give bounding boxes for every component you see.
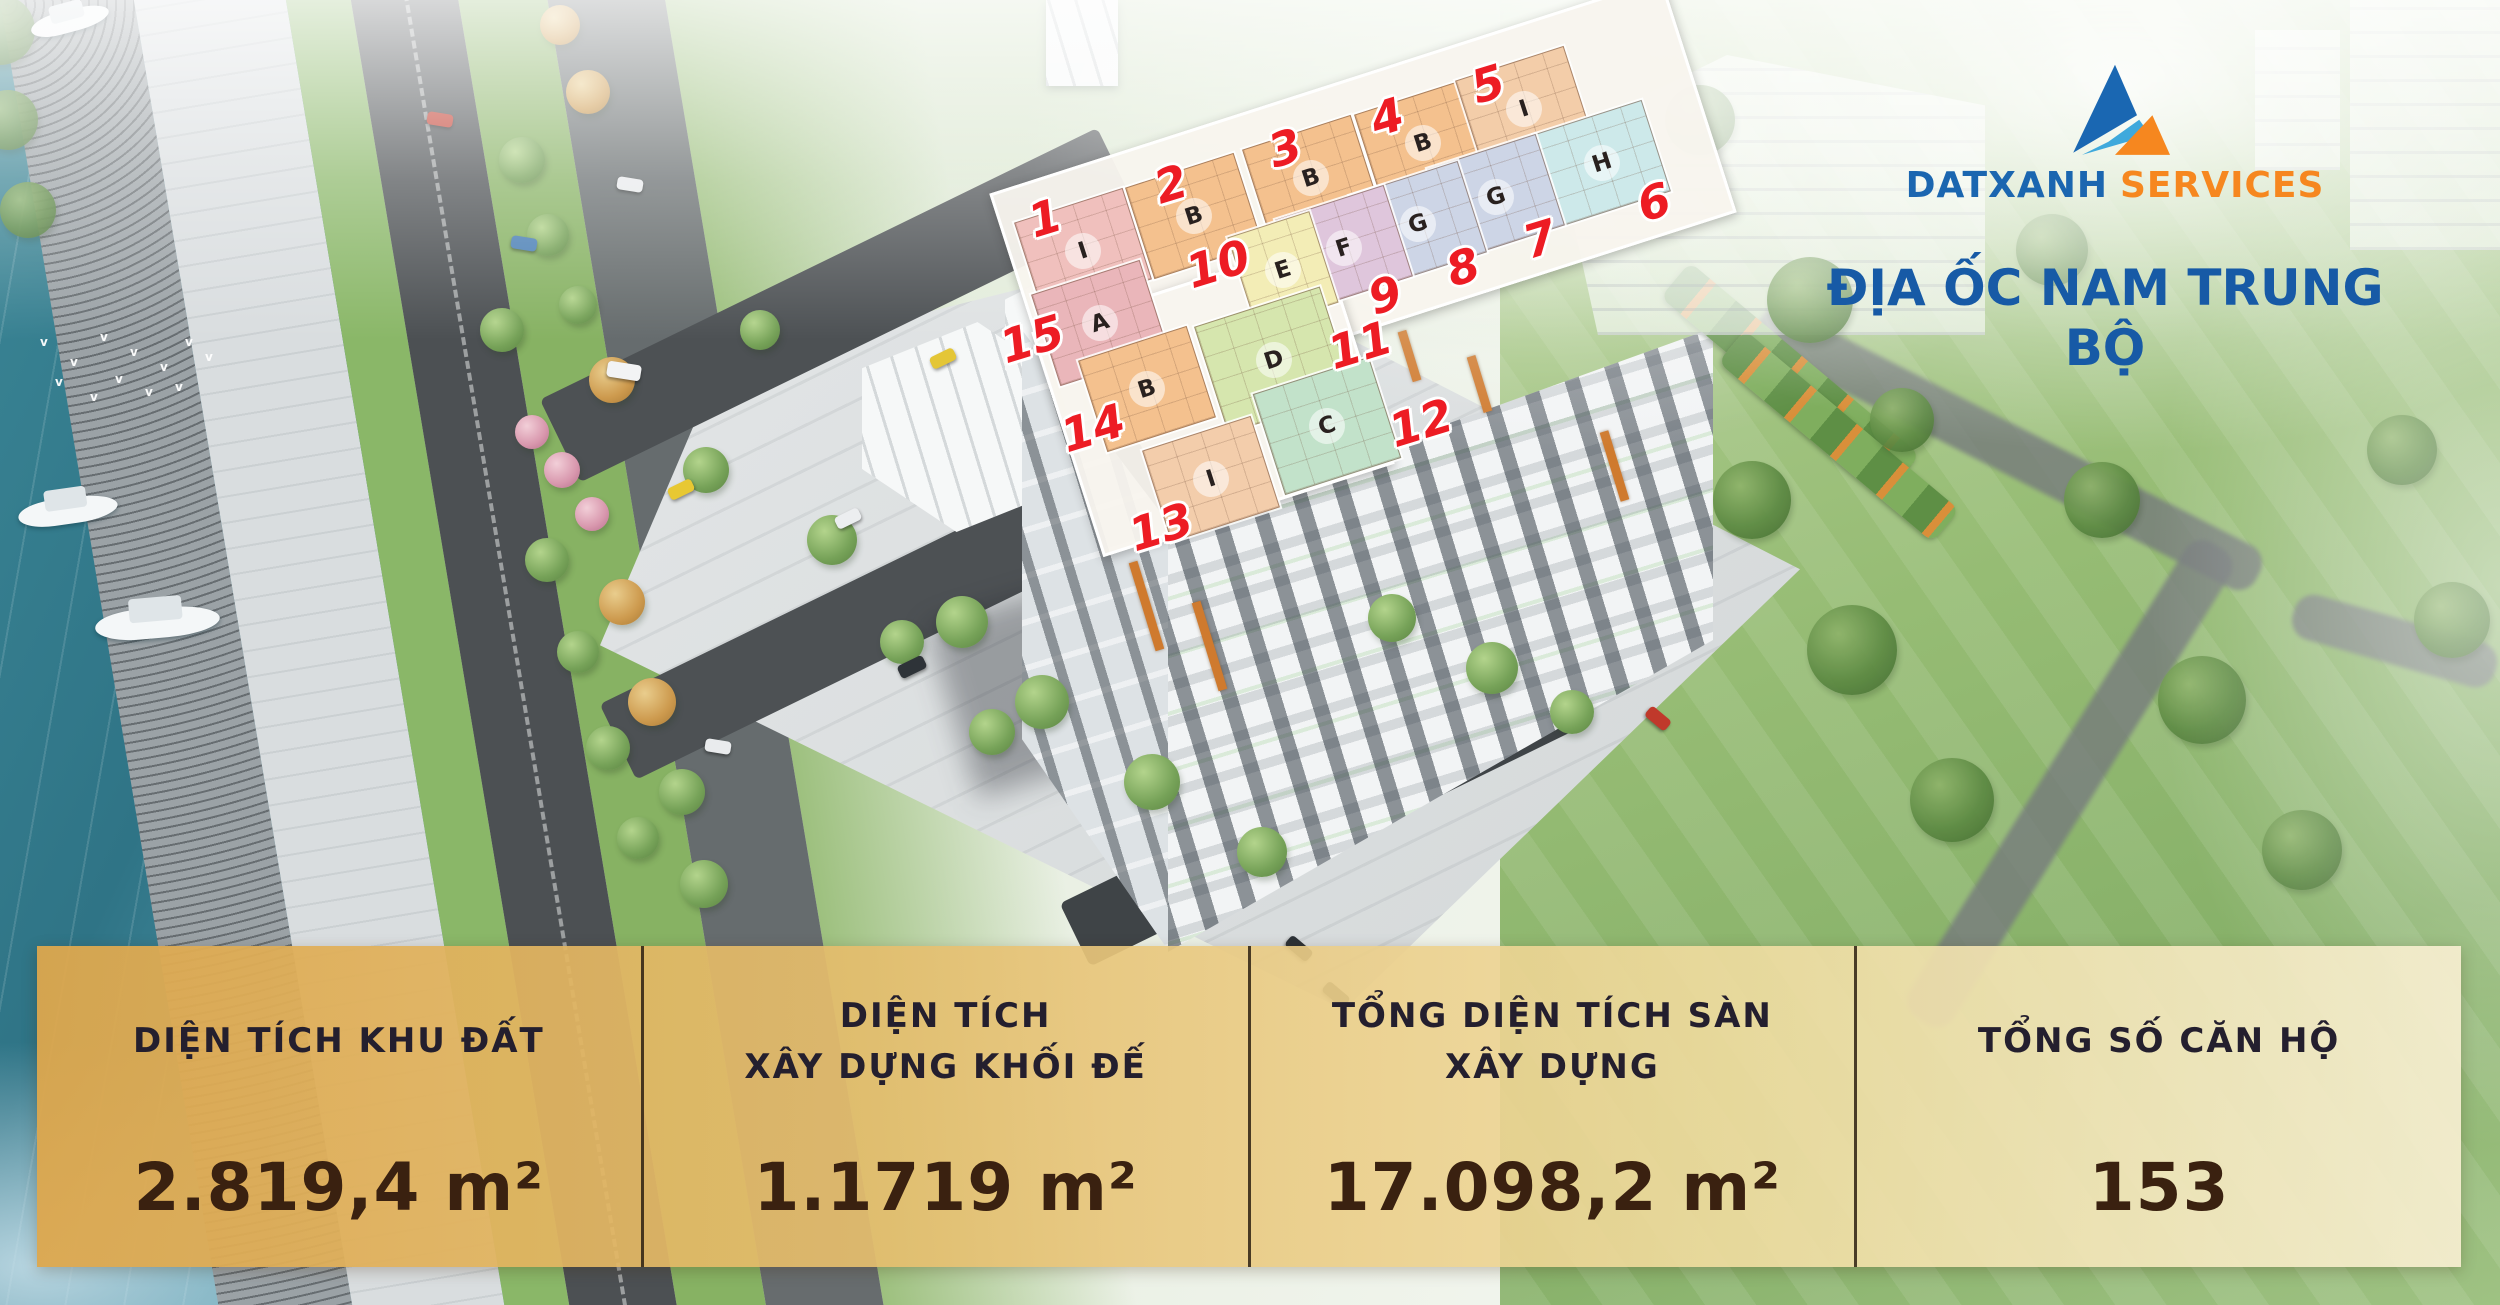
brand-name-primary: DATXANH <box>1906 168 2108 204</box>
lot-number-12: 12 <box>1384 392 1459 455</box>
stat-label: TỔNG SỐ CĂN HỘ <box>1978 990 2340 1094</box>
stat-label-line: DIỆN TÍCH <box>840 998 1052 1035</box>
stat-value: 153 <box>2089 1155 2230 1221</box>
stat-label-line: XÂY DỰNG <box>1445 1049 1660 1086</box>
stat-label-line: DIỆN TÍCH KHU ĐẤT <box>133 1023 545 1060</box>
stat-panel-total-units: TỔNG SỐ CĂN HỘ 153 <box>1854 946 2461 1267</box>
stat-label: TỔNG DIỆN TÍCH SÀN XÂY DỰNG <box>1332 990 1773 1094</box>
unit-letter: E <box>1260 247 1305 292</box>
unit-letter: I <box>1501 86 1546 131</box>
stat-panel-total-floor-area: TỔNG DIỆN TÍCH SÀN XÂY DỰNG 17.098,2 m² <box>1248 946 1855 1267</box>
unit-letter: A <box>1077 300 1122 345</box>
unit-letter: I <box>1188 456 1233 501</box>
lot-number-13: 13 <box>1124 496 1199 559</box>
lot-number-14: 14 <box>1056 397 1131 460</box>
stat-panel-land-area: DIỆN TÍCH KHU ĐẤT 2.819,4 m² <box>37 946 641 1267</box>
unit-letter: B <box>1124 366 1169 411</box>
lot-number-6: 6 <box>1632 175 1676 228</box>
unit-letter: H <box>1579 140 1624 185</box>
marketing-banner: vvvvvvvvvvvv IBBBIHGGFEADBCI123456789101… <box>0 0 2500 1305</box>
stat-label-line: TỔNG SỐ CĂN HỘ <box>1978 1023 2340 1060</box>
stat-label: DIỆN TÍCH XÂY DỰNG KHỐI ĐẾ <box>744 990 1146 1094</box>
stat-value: 17.098,2 m² <box>1324 1155 1781 1221</box>
brand-name-secondary: SERVICES <box>2120 168 2324 204</box>
brand-logo-text: DATXANH SERVICES <box>1906 168 2325 204</box>
stats-bar: DIỆN TÍCH KHU ĐẤT 2.819,4 m² DIỆN TÍCH X… <box>37 946 2461 1267</box>
stat-label-line: TỔNG DIỆN TÍCH SÀN <box>1332 998 1773 1035</box>
lot-number-11: 11 <box>1323 314 1398 377</box>
unit-letter: G <box>1473 174 1518 219</box>
stat-label-line: XÂY DỰNG KHỐI ĐẾ <box>744 1049 1146 1086</box>
stat-value: 2.819,4 m² <box>134 1155 544 1221</box>
stat-value: 1.1719 m² <box>753 1155 1137 1221</box>
datxanh-triangle-icon <box>2060 60 2170 164</box>
stat-label: DIỆN TÍCH KHU ĐẤT <box>133 990 545 1094</box>
brand-logo: DATXANH SERVICES <box>1905 60 2325 220</box>
unit-letter: F <box>1321 225 1366 270</box>
stat-panel-base-construction-area: DIỆN TÍCH XÂY DỰNG KHỐI ĐẾ 1.1719 m² <box>641 946 1248 1267</box>
unit-letter: C <box>1304 403 1349 448</box>
unit-letter: G <box>1395 201 1440 246</box>
brand-tagline: ĐỊA ỐC NAM TRUNG BỘ <box>1790 258 2420 378</box>
unit-letter: D <box>1251 337 1296 382</box>
